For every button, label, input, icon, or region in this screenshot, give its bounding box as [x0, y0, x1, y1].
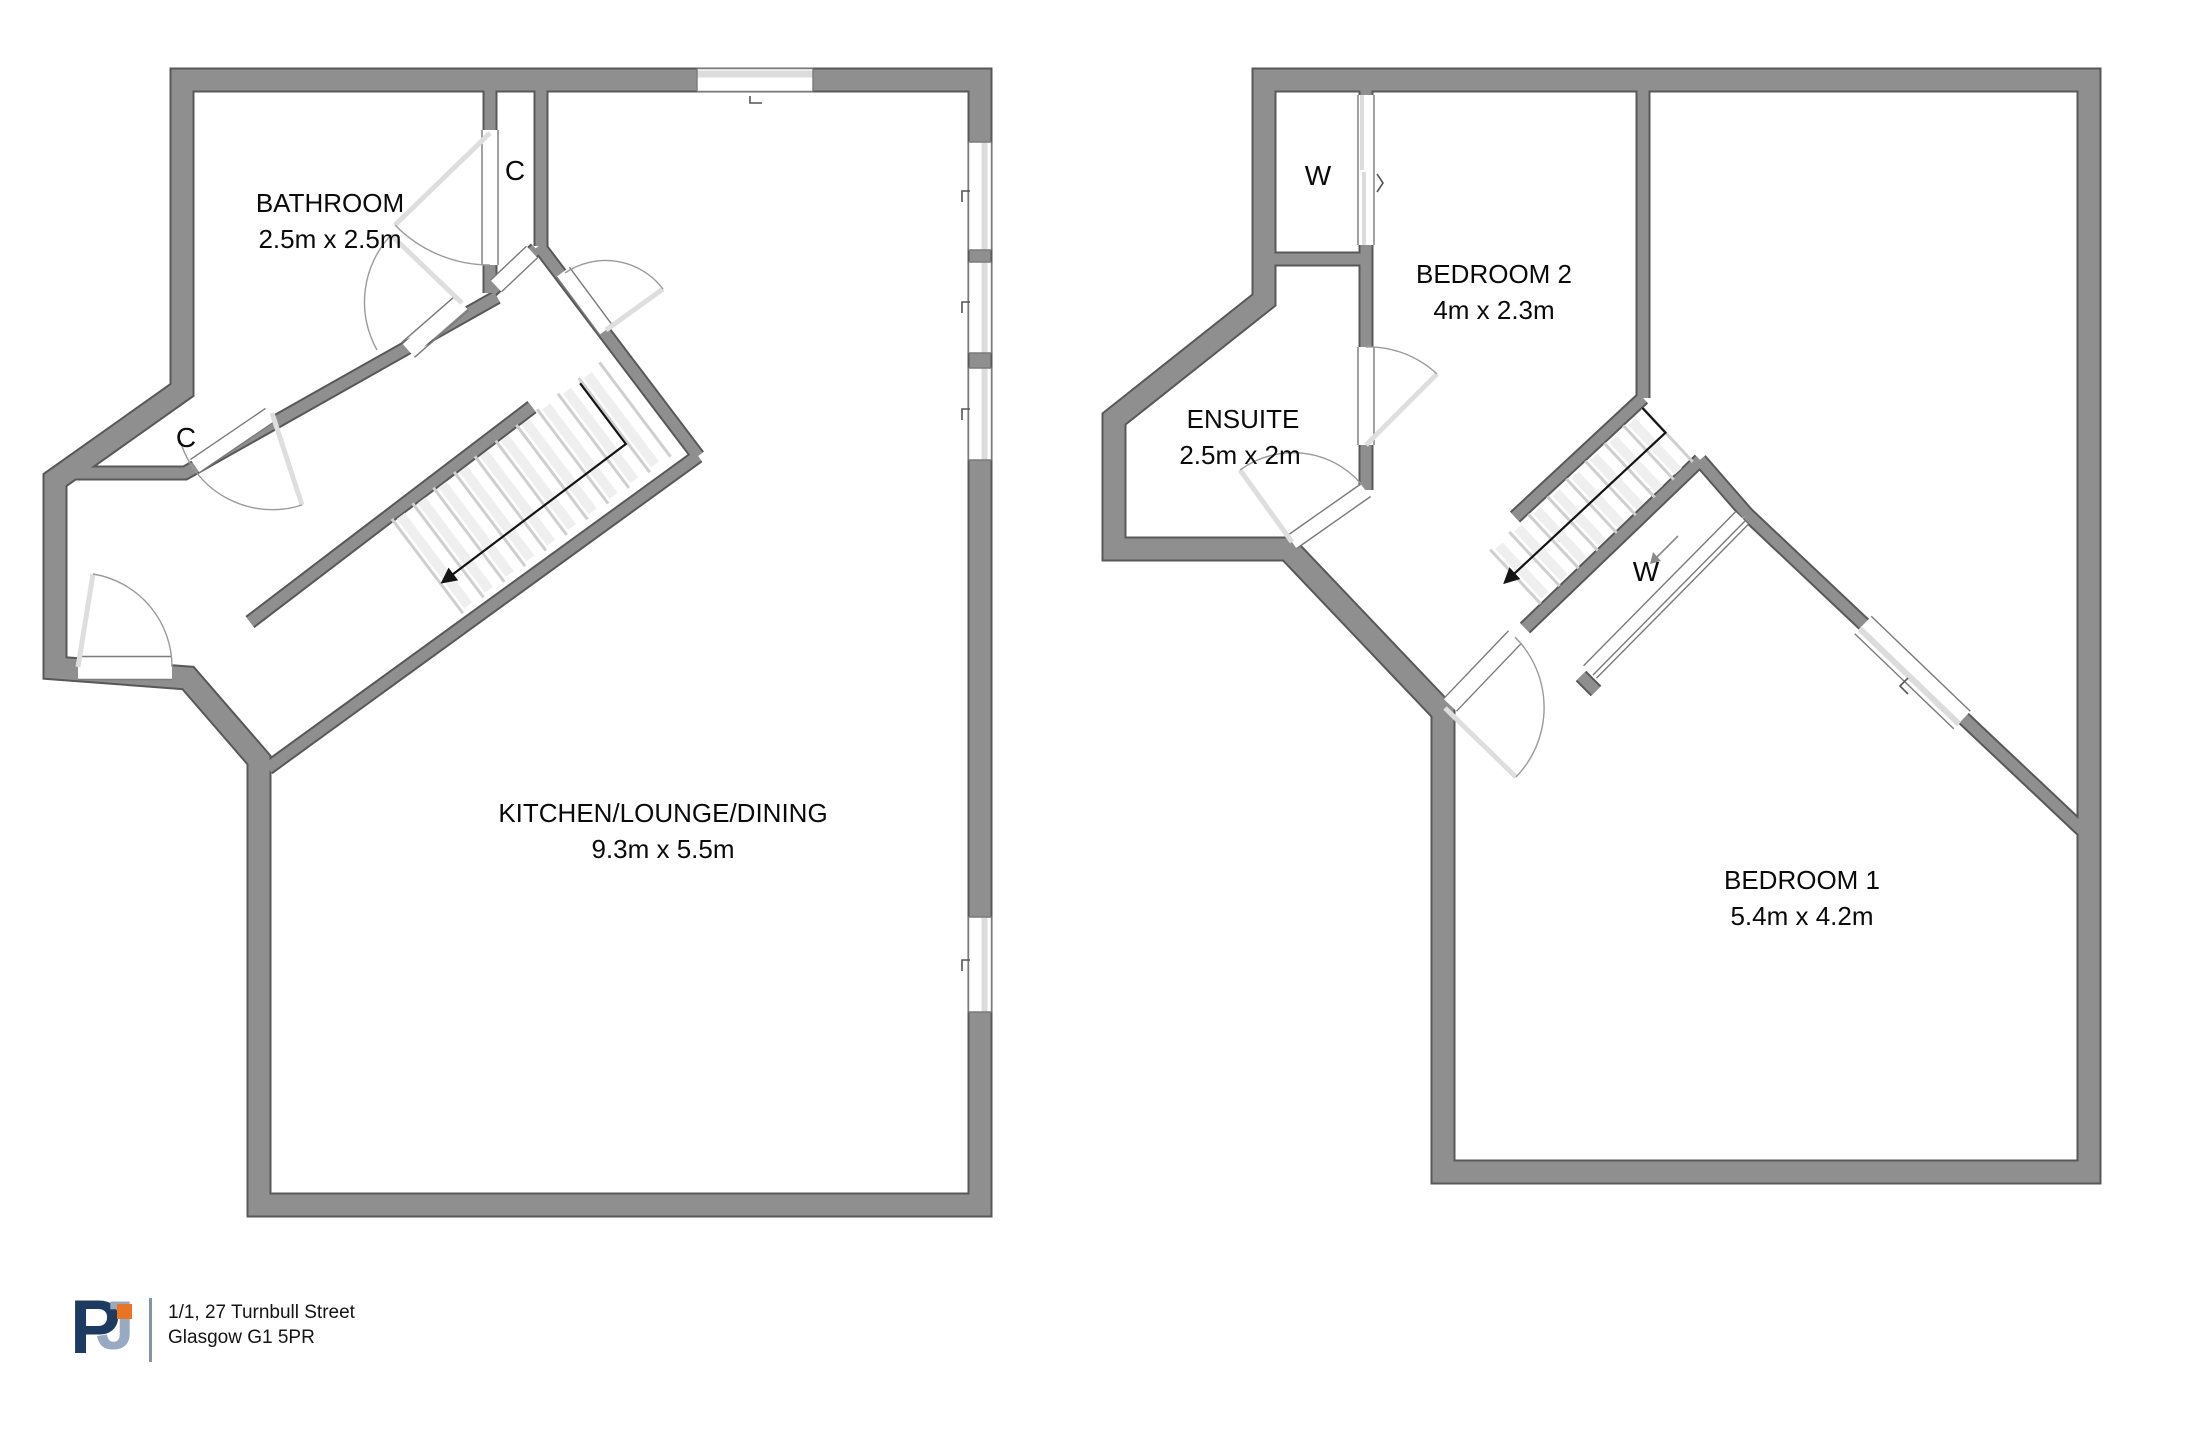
door-leaf [1366, 374, 1437, 445]
right-plan-outer-wall-fill [1114, 80, 2089, 1172]
door-arc [1515, 637, 1544, 777]
logo-letter-j: J [96, 1291, 134, 1360]
window-left-right-3 [962, 368, 992, 460]
door-leaf [272, 413, 302, 505]
door-leaf [1445, 708, 1516, 777]
door-wardrobe-closet [1358, 95, 1383, 245]
address-line-2: Glasgow G1 5PR [168, 1325, 355, 1350]
label-bedroom2-dims: 4m x 2.3m [1433, 295, 1554, 325]
floorplan-page: BATHROOM 2.5m x 2.5m C C KITCHEN/LOUNGE/… [0, 0, 2208, 1435]
door-leaf [78, 574, 93, 667]
door-leaf [391, 235, 462, 303]
logo-divider [149, 1298, 152, 1362]
door-arc [93, 574, 172, 667]
floorplan-canvas: BATHROOM 2.5m x 2.5m C C KITCHEN/LOUNGE/… [0, 0, 2208, 1435]
door-arc [395, 225, 490, 265]
label-bathroom-dims: 2.5m x 2.5m [258, 224, 401, 254]
window-left-right-2 [962, 262, 992, 353]
label-bedroom2: BEDROOM 2 [1416, 259, 1572, 289]
window-left-right-1 [962, 142, 992, 250]
wardrobe-sliding-doors [1584, 512, 1749, 679]
label-closet-top: C [505, 155, 525, 186]
door-entry [78, 574, 172, 680]
label-kitchen-dims: 9.3m x 5.5m [591, 834, 734, 864]
door-bathroom [395, 130, 498, 265]
door-bedroom1 [1444, 631, 1545, 777]
label-wardrobe: W [1633, 556, 1660, 587]
door-leaf [606, 289, 663, 330]
door-leaf [1240, 470, 1292, 542]
property-address: 1/1, 27 Turnbull Street Glasgow G1 5PR [168, 1300, 355, 1350]
window-bedroom1-diagonal [1855, 616, 1971, 728]
label-bedroom1-dims: 5.4m x 4.2m [1730, 901, 1873, 931]
label-ensuite-dims: 2.5m x 2m [1179, 440, 1300, 470]
label-wardrobe-closet: W [1305, 160, 1332, 191]
window-tick-icon [750, 96, 762, 103]
door-arc [1366, 347, 1437, 374]
label-bedroom1: BEDROOM 1 [1724, 865, 1880, 895]
label-ensuite: ENSUITE [1187, 404, 1300, 434]
door-leaf [395, 133, 490, 225]
door-tick-icon [1377, 174, 1383, 192]
window-left-top [697, 69, 813, 104]
label-bathroom: BATHROOM [256, 188, 404, 218]
label-closet-entry: C [176, 422, 196, 453]
logo-orange-square-icon [117, 1304, 132, 1319]
door-bedroom2 [1358, 347, 1437, 445]
door-kitchen [557, 260, 663, 334]
left-plan-outer-wall [55, 80, 980, 1205]
window-left-right-4 [962, 917, 992, 1012]
label-kitchen: KITCHEN/LOUNGE/DINING [498, 798, 827, 828]
address-line-1: 1/1, 27 Turnbull Street [168, 1300, 355, 1325]
